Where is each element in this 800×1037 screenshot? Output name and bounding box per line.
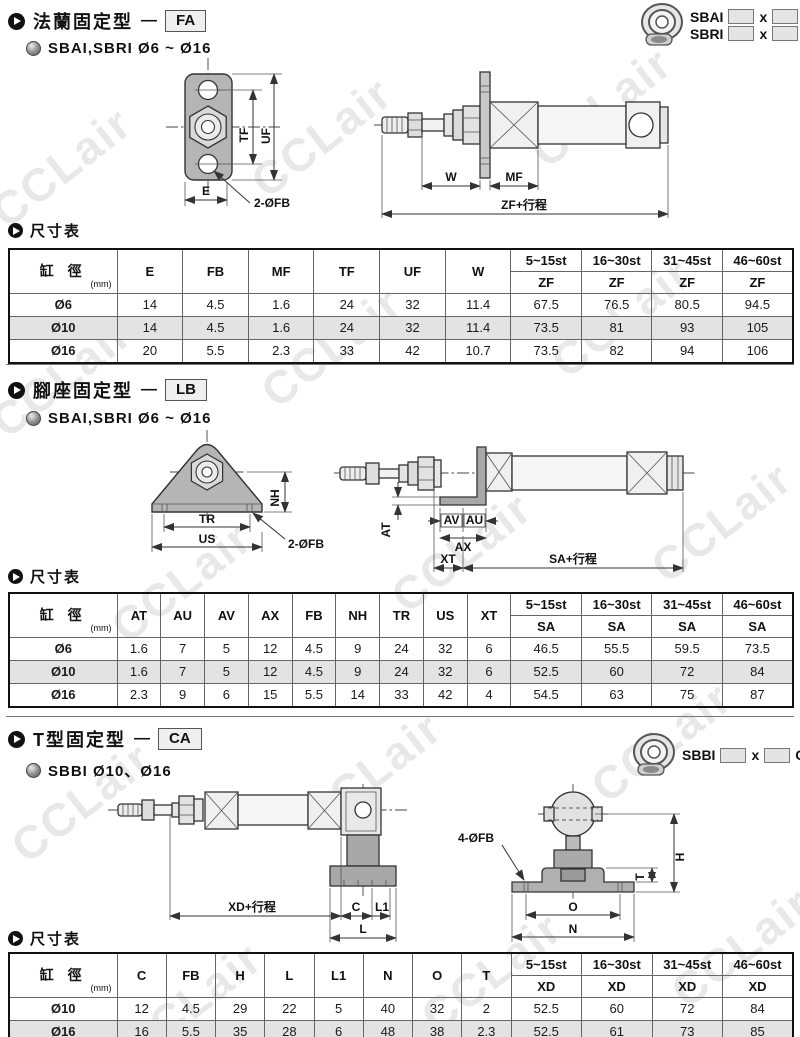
dim-header: O	[413, 953, 462, 998]
value-cell: 33	[314, 340, 380, 364]
value-cell: 52.5	[511, 1021, 582, 1037]
value-cell: 32	[423, 661, 467, 684]
value-cell: 61	[582, 1021, 653, 1037]
value-cell: 46.5	[511, 638, 582, 661]
value-cell: 4.5	[183, 294, 249, 317]
dim-header: AT	[117, 593, 161, 638]
stroke-placeholder-box	[772, 9, 798, 24]
dim-label-nh: NH	[268, 489, 282, 506]
model-series: SBRI	[690, 26, 723, 42]
section-2-subtitle: SBAI,SBRI Ø6 ~ Ø16	[26, 410, 211, 427]
dim-label-zf-stroke: ZF+行程	[501, 197, 547, 212]
value-cell: 5.5	[292, 684, 336, 708]
value-cell: 93	[652, 317, 723, 340]
value-cell: 5	[205, 661, 249, 684]
stroke-range-header: 46~60st	[723, 953, 794, 976]
value-cell: 15	[248, 684, 292, 708]
value-cell: 55.5	[581, 638, 652, 661]
table-row: Ø162.396155.5143342454.5637587	[9, 684, 793, 708]
mount-code-badge: CA	[158, 728, 202, 750]
dim-header: UF	[380, 249, 446, 294]
stroke-sub-header: SA	[511, 616, 582, 638]
value-cell: 32	[380, 294, 446, 317]
dimension-table-2: 缸 徑(mm)ATAUAVAXFBNHTRUSXT5~15st16~30st31…	[8, 592, 794, 708]
value-cell: 42	[423, 684, 467, 708]
dim-label-2fb: 2-ØFB	[254, 196, 290, 210]
play-bullet-icon	[8, 731, 25, 748]
dim-header: FB	[292, 593, 336, 638]
value-cell: 1.6	[248, 294, 314, 317]
stroke-range-header: 16~30st	[581, 249, 652, 272]
bore-header: 缸 徑(mm)	[9, 953, 117, 998]
model-mount: CA	[795, 747, 800, 763]
stroke-sub-header: SA	[722, 616, 793, 638]
value-cell: 12	[248, 661, 292, 684]
dim-label-h: H	[673, 853, 687, 862]
table-row: Ø16165.53528648382.352.5617385	[9, 1021, 793, 1037]
value-cell: 9	[161, 684, 205, 708]
dim-header: FB	[183, 249, 249, 294]
bore-header: 缸 徑(mm)	[9, 593, 117, 638]
dim-header: AU	[161, 593, 205, 638]
dim-header: MF	[248, 249, 314, 294]
dim-header: FB	[166, 953, 215, 998]
foot-cylinder-side-drawing: AT AV AU AX XT SA+行程	[330, 426, 702, 582]
bore-header: 缸 徑(mm)	[9, 249, 117, 294]
section-3-subtitle: SBBI Ø10、Ø16	[26, 760, 172, 781]
section-1-header: 法蘭固定型 — FA	[8, 8, 206, 34]
value-cell: 2.3	[117, 684, 161, 708]
dim-header: L1	[314, 953, 363, 998]
value-cell: 1.6	[248, 317, 314, 340]
value-cell: 24	[314, 317, 380, 340]
dimension-table-1: 缸 徑(mm)EFBMFTFUFW5~15st16~30st31~45st46~…	[8, 248, 794, 364]
model-series: SBAI	[690, 9, 723, 25]
model-code-row: SBBI x CA	[682, 747, 800, 763]
dim-header: L	[265, 953, 314, 998]
dim-header: N	[363, 953, 412, 998]
dim-label-2fb: 2-ØFB	[288, 537, 324, 551]
value-cell: 2.3	[248, 340, 314, 364]
model-series: SBBI	[682, 747, 715, 763]
bore-cell: Ø10	[9, 998, 117, 1021]
value-cell: 4	[467, 684, 511, 708]
stroke-placeholder-box	[772, 26, 798, 41]
watermark: CCLair	[0, 96, 142, 239]
value-cell: 6	[467, 638, 511, 661]
value-cell: 2	[462, 998, 511, 1021]
bore-header-unit: (mm)	[91, 621, 112, 635]
subtitle-text: SBAI,SBRI Ø6 ~ Ø16	[48, 40, 211, 57]
bore-header-text: 缸 徑	[40, 263, 87, 279]
value-cell: 24	[380, 638, 424, 661]
value-cell: 5	[205, 638, 249, 661]
value-cell: 85	[723, 1021, 794, 1037]
stroke-sub-header: XD	[723, 976, 794, 998]
value-cell: 105	[722, 317, 793, 340]
t-bracket-front-view-drawing: 4-ØFB H T O N	[428, 778, 763, 954]
flange-front-view-drawing: TF UF E 2-ØFB	[150, 56, 365, 224]
value-cell: 38	[413, 1021, 462, 1037]
model-code-row: SBAI x FA	[690, 9, 800, 25]
dimension-table-3: 缸 徑(mm)CFBHLL1NOT5~15st16~30st31~45st46~…	[8, 952, 794, 1037]
table-row: Ø16205.52.3334210.773.58294106	[9, 340, 793, 364]
stroke-sub-header: XD	[511, 976, 582, 998]
section-1-subtitle: SBAI,SBRI Ø6 ~ Ø16	[26, 40, 211, 57]
section-3-model-codes: SBBI x CA	[632, 733, 800, 777]
value-cell: 67.5	[511, 294, 582, 317]
t-mount-cylinder-side-drawing: XD+行程 C L1 L	[92, 780, 424, 952]
value-cell: 35	[216, 1021, 265, 1037]
dim-label-4fb: 4-ØFB	[458, 831, 494, 845]
dimension-table-3-wrap: 缸 徑(mm)CFBHLL1NOT5~15st16~30st31~45st46~…	[8, 952, 794, 1037]
value-cell: 4.5	[292, 661, 336, 684]
stroke-range-header: 16~30st	[582, 953, 653, 976]
bore-header-text: 缸 徑	[40, 967, 87, 983]
value-cell: 29	[216, 998, 265, 1021]
section-1-title: 法蘭固定型	[33, 8, 133, 34]
value-cell: 52.5	[511, 998, 582, 1021]
dim-label-w: W	[445, 170, 457, 184]
value-cell: 60	[582, 998, 653, 1021]
bore-placeholder-box	[720, 748, 746, 763]
value-cell: 22	[265, 998, 314, 1021]
dim-header: C	[117, 953, 166, 998]
value-cell: 11.4	[445, 317, 511, 340]
stroke-sub-header: ZF	[722, 272, 793, 294]
bore-header-text: 缸 徑	[40, 607, 87, 623]
dimension-table-2-wrap: 缸 徑(mm)ATAUAVAXFBNHTRUSXT5~15st16~30st31…	[8, 592, 794, 708]
value-cell: 9	[336, 638, 380, 661]
table-row: Ø101.675124.592432652.5607284	[9, 661, 793, 684]
stroke-sub-header: ZF	[652, 272, 723, 294]
dimension-table-1-wrap: 缸 徑(mm)EFBMFTFUFW5~15st16~30st31~45st46~…	[8, 248, 794, 364]
model-x: x	[759, 26, 767, 42]
table-label-text: 尺寸表	[30, 220, 81, 241]
value-cell: 9	[336, 661, 380, 684]
value-cell: 12	[117, 998, 166, 1021]
value-cell: 5.5	[183, 340, 249, 364]
value-cell: 87	[722, 684, 793, 708]
value-cell: 82	[581, 340, 652, 364]
dim-header: E	[117, 249, 183, 294]
value-cell: 84	[722, 661, 793, 684]
dim-header: NH	[336, 593, 380, 638]
stroke-range-header: 31~45st	[652, 249, 723, 272]
dim-header: T	[462, 953, 511, 998]
play-bullet-icon	[8, 931, 23, 946]
section-2-title: 腳座固定型	[33, 377, 133, 403]
stroke-range-header: 46~60st	[722, 593, 793, 616]
value-cell: 32	[423, 638, 467, 661]
stroke-sub-header: ZF	[581, 272, 652, 294]
value-cell: 52.5	[511, 661, 582, 684]
stroke-placeholder-box	[764, 748, 790, 763]
bore-cell: Ø16	[9, 1021, 117, 1037]
value-cell: 42	[380, 340, 446, 364]
bore-cell: Ø10	[9, 661, 117, 684]
bore-cell: Ø6	[9, 638, 117, 661]
section-2-table-label: 尺寸表	[8, 566, 81, 587]
value-cell: 11.4	[445, 294, 511, 317]
value-cell: 7	[161, 661, 205, 684]
value-cell: 73.5	[511, 317, 582, 340]
table-row: Ø10124.5292254032252.5607284	[9, 998, 793, 1021]
section-1-model-codes: SBAI x FA SBRI x LB	[640, 3, 800, 47]
value-cell: 54.5	[511, 684, 582, 708]
bore-cell: Ø16	[9, 340, 117, 364]
section-divider	[6, 716, 794, 717]
value-cell: 40	[363, 998, 412, 1021]
value-cell: 72	[652, 661, 723, 684]
dim-label-o: O	[568, 900, 577, 914]
stroke-range-header: 31~45st	[652, 953, 723, 976]
sphere-bullet-icon	[26, 411, 41, 426]
section-3-header: T型固定型 — CA	[8, 726, 202, 752]
stroke-range-header: 5~15st	[511, 249, 582, 272]
value-cell: 59.5	[652, 638, 723, 661]
value-cell: 14	[117, 317, 183, 340]
dim-label-l: L	[359, 922, 366, 936]
value-cell: 7	[161, 638, 205, 661]
value-cell: 75	[652, 684, 723, 708]
bore-cell: Ø16	[9, 684, 117, 708]
value-cell: 2.3	[462, 1021, 511, 1037]
value-cell: 4.5	[183, 317, 249, 340]
catalog-page: CCLairCCLairCCLairCCLairCCLairCCLairCCLa…	[0, 0, 800, 1037]
dim-label-n: N	[569, 922, 578, 936]
value-cell: 32	[380, 317, 446, 340]
stroke-sub-header: XD	[582, 976, 653, 998]
dim-label-tf: TF	[237, 128, 251, 143]
value-cell: 14	[117, 294, 183, 317]
play-bullet-icon	[8, 223, 23, 238]
dim-label-t: T	[633, 873, 647, 881]
foot-bracket-drawing: NH TR US 2-ØFB	[92, 426, 344, 572]
dim-label-at: AT	[379, 522, 393, 538]
bore-placeholder-box	[728, 9, 754, 24]
section-2-header: 腳座固定型 — LB	[8, 377, 207, 403]
dim-label-xt: XT	[440, 552, 456, 566]
value-cell: 48	[363, 1021, 412, 1037]
value-cell: 73.5	[511, 340, 582, 364]
stroke-range-header: 5~15st	[511, 953, 582, 976]
value-cell: 73	[652, 1021, 723, 1037]
value-cell: 76.5	[581, 294, 652, 317]
value-cell: 24	[380, 661, 424, 684]
dim-label-l1: L1	[375, 900, 389, 914]
value-cell: 4.5	[166, 998, 215, 1021]
value-cell: 14	[336, 684, 380, 708]
section-1-table-label: 尺寸表	[8, 220, 81, 241]
dim-label-tr: TR	[199, 512, 215, 526]
value-cell: 1.6	[117, 638, 161, 661]
dim-header: TR	[380, 593, 424, 638]
stroke-sub-header: SA	[581, 616, 652, 638]
value-cell: 24	[314, 294, 380, 317]
stroke-sub-header: ZF	[511, 272, 582, 294]
dim-header: W	[445, 249, 511, 294]
value-cell: 63	[581, 684, 652, 708]
value-cell: 84	[723, 998, 794, 1021]
sphere-bullet-icon	[26, 763, 41, 778]
value-cell: 10.7	[445, 340, 511, 364]
value-cell: 106	[722, 340, 793, 364]
model-x: x	[759, 9, 767, 25]
value-cell: 94	[652, 340, 723, 364]
section-divider	[6, 364, 794, 365]
bore-cell: Ø10	[9, 317, 117, 340]
value-cell: 73.5	[722, 638, 793, 661]
section-3-dash: —	[134, 730, 150, 748]
value-cell: 6	[467, 661, 511, 684]
dim-label-c: C	[352, 900, 361, 914]
dim-label-au: AU	[466, 513, 483, 527]
dim-header: XT	[467, 593, 511, 638]
bore-header-unit: (mm)	[91, 277, 112, 291]
flange-cylinder-side-drawing: W MF ZF+行程	[372, 50, 672, 226]
stroke-range-header: 31~45st	[652, 593, 723, 616]
value-cell: 5	[314, 998, 363, 1021]
value-cell: 33	[380, 684, 424, 708]
dim-label-sa-stroke: SA+行程	[549, 551, 597, 566]
dim-header: US	[423, 593, 467, 638]
table-row: Ø10144.51.6243211.473.58193105	[9, 317, 793, 340]
value-cell: 6	[205, 684, 249, 708]
value-cell: 94.5	[722, 294, 793, 317]
value-cell: 20	[117, 340, 183, 364]
value-cell: 32	[413, 998, 462, 1021]
bore-cell: Ø6	[9, 294, 117, 317]
value-cell: 28	[265, 1021, 314, 1037]
section-3-title: T型固定型	[33, 726, 126, 752]
table-row: Ø61.675124.592432646.555.559.573.5	[9, 638, 793, 661]
value-cell: 81	[581, 317, 652, 340]
dim-header: TF	[314, 249, 380, 294]
value-cell: 16	[117, 1021, 166, 1037]
mount-code-badge: FA	[165, 10, 206, 32]
table-label-text: 尺寸表	[30, 928, 81, 949]
bore-header-unit: (mm)	[91, 981, 112, 995]
value-cell: 5.5	[166, 1021, 215, 1037]
stroke-sub-header: SA	[652, 616, 723, 638]
stroke-sub-header: XD	[652, 976, 723, 998]
value-cell: 60	[581, 661, 652, 684]
dim-label-mf: MF	[505, 170, 522, 184]
value-cell: 12	[248, 638, 292, 661]
cylinder-icon	[632, 733, 678, 777]
dim-label-xd-stroke: XD+行程	[228, 899, 276, 914]
value-cell: 4.5	[292, 638, 336, 661]
stroke-range-header: 16~30st	[581, 593, 652, 616]
value-cell: 1.6	[117, 661, 161, 684]
dim-label-uf: UF	[259, 128, 273, 144]
bore-placeholder-box	[728, 26, 754, 41]
value-cell: 72	[652, 998, 723, 1021]
dim-label-av: AV	[444, 513, 460, 527]
dim-header: H	[216, 953, 265, 998]
section-1-dash: —	[141, 12, 157, 30]
stroke-range-header: 5~15st	[511, 593, 582, 616]
section-2-dash: —	[141, 381, 157, 399]
play-bullet-icon	[8, 13, 25, 30]
model-code-row: SBRI x LB	[690, 26, 800, 42]
mount-code-badge: LB	[165, 379, 207, 401]
subtitle-text: SBBI Ø10、Ø16	[48, 760, 172, 781]
stroke-range-header: 46~60st	[722, 249, 793, 272]
cylinder-icon	[640, 3, 686, 47]
table-row: Ø6144.51.6243211.467.576.580.594.5	[9, 294, 793, 317]
dim-header: AX	[248, 593, 292, 638]
play-bullet-icon	[8, 569, 23, 584]
dim-label-us: US	[199, 532, 216, 546]
subtitle-text: SBAI,SBRI Ø6 ~ Ø16	[48, 410, 211, 427]
table-label-text: 尺寸表	[30, 566, 81, 587]
value-cell: 6	[314, 1021, 363, 1037]
dim-header: AV	[205, 593, 249, 638]
sphere-bullet-icon	[26, 41, 41, 56]
section-3-table-label: 尺寸表	[8, 928, 81, 949]
dim-label-e: E	[202, 184, 210, 198]
value-cell: 80.5	[652, 294, 723, 317]
play-bullet-icon	[8, 382, 25, 399]
model-x: x	[751, 747, 759, 763]
